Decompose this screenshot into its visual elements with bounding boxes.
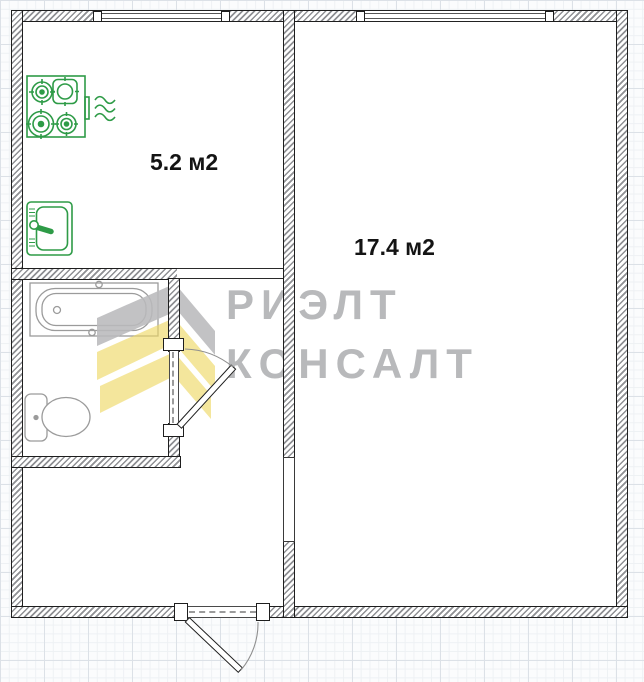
living-room-doorway-opening xyxy=(283,457,295,542)
living-room-window xyxy=(360,10,550,22)
watermark-text-line2: КОНСАЛТ xyxy=(226,343,479,385)
floor-plan-canvas: РИЭЛТ КОНСАЛТ xyxy=(0,0,644,682)
living-room-area-label: 17.4 м2 xyxy=(354,234,435,261)
wall-center-vertical-upper xyxy=(283,10,295,458)
kitchen-window-jamb-left xyxy=(93,11,102,22)
bathroom-door-dashline xyxy=(172,352,174,423)
wall-center-vertical-lower xyxy=(283,541,295,618)
entrance-door-jamb-right xyxy=(256,603,270,621)
watermark: РИЭЛТ КОНСАЛТ xyxy=(0,0,644,682)
kitchen-area-label: 5.2 м2 xyxy=(150,149,218,176)
entrance-door-dashline xyxy=(189,611,256,613)
wall-left xyxy=(11,10,23,618)
wall-bottom-left xyxy=(11,606,177,618)
bathroom-door-opening xyxy=(169,351,179,424)
kitchen-window-jamb-right xyxy=(221,11,230,22)
bathroom-door-jamb-top xyxy=(163,338,184,351)
living-room-window-jamb-right xyxy=(545,11,554,22)
wall-right xyxy=(616,10,628,618)
wall-bottom-right xyxy=(269,606,628,618)
entrance-door-jamb-left xyxy=(174,603,188,621)
watermark-text-line1: РИЭЛТ xyxy=(226,284,403,326)
living-room-window-jamb-left xyxy=(356,11,365,22)
kitchen-opening xyxy=(177,268,283,279)
wall-bathroom-bottom xyxy=(11,456,181,468)
kitchen-window xyxy=(97,10,223,22)
wall-kitchen-bottom xyxy=(11,268,179,280)
